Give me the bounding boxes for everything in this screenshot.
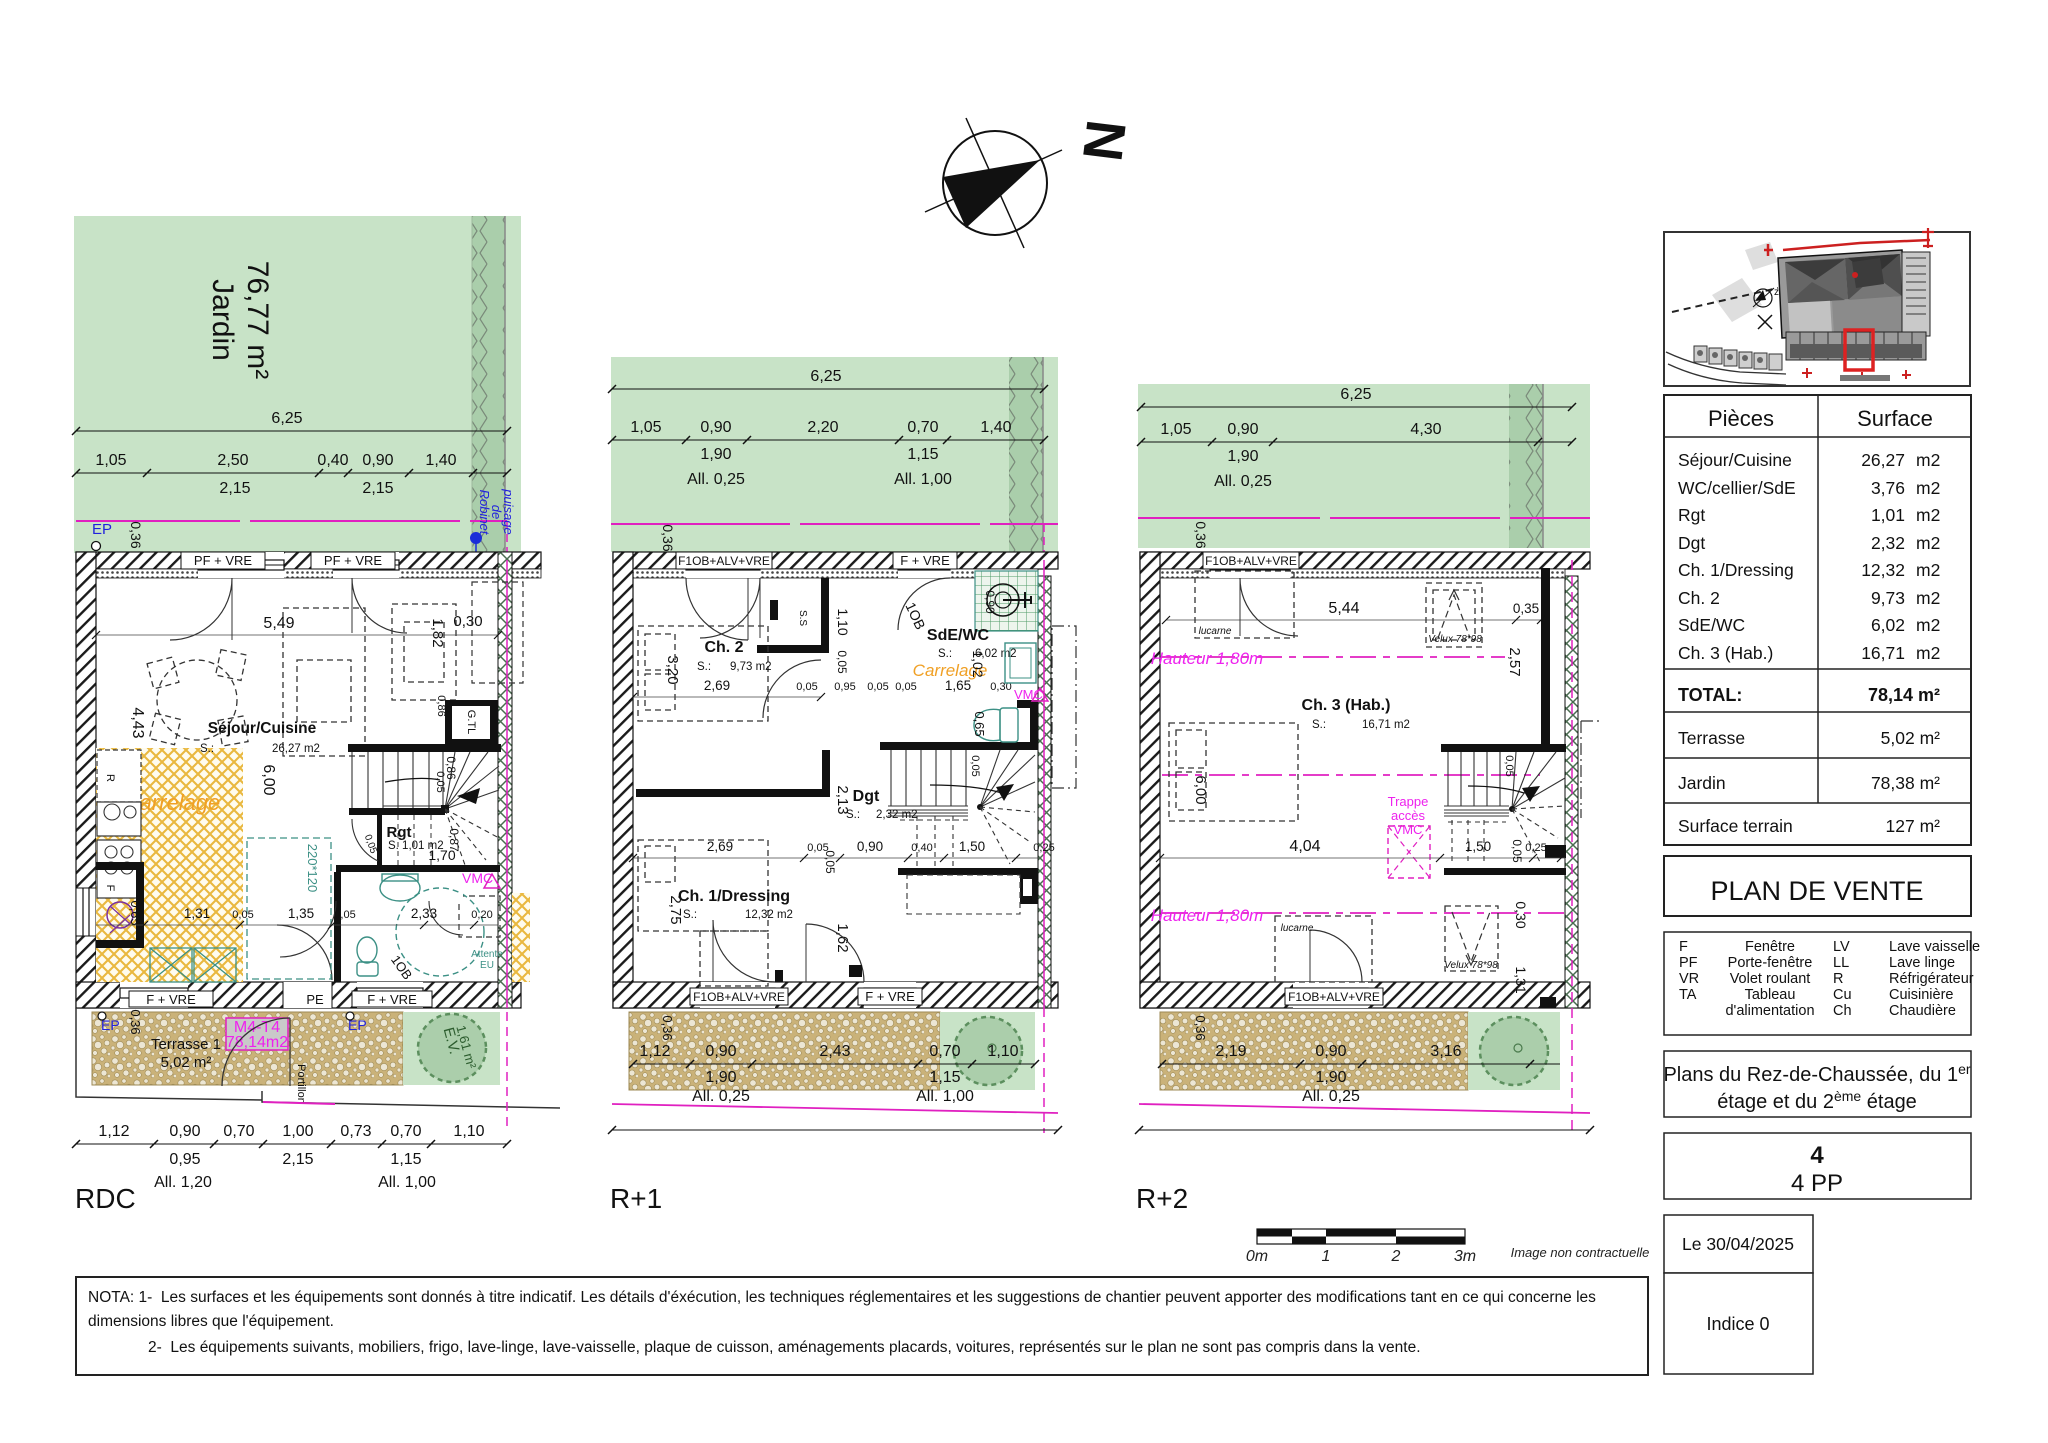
svg-text:m2: m2 xyxy=(1916,588,1940,608)
svg-text:S.:: S.: xyxy=(683,909,697,921)
svg-text:Rgt: Rgt xyxy=(1678,505,1705,525)
svg-text:0,90: 0,90 xyxy=(362,452,393,469)
svg-text:1,00: 1,00 xyxy=(282,1123,313,1140)
svg-text:1,05: 1,05 xyxy=(630,419,661,436)
svg-text:1,01: 1,01 xyxy=(1871,505,1905,525)
svg-text:S.S: S.S xyxy=(797,610,808,626)
svg-text:Volet roulant: Volet roulant xyxy=(1730,971,1811,987)
svg-text:0,35: 0,35 xyxy=(1513,601,1539,616)
svg-text:Tableau: Tableau xyxy=(1745,987,1796,1003)
svg-text:1,50: 1,50 xyxy=(959,839,985,854)
svg-text:Dgt: Dgt xyxy=(853,788,880,805)
svg-text:0,05: 0,05 xyxy=(334,909,355,921)
svg-text:16,71 m2: 16,71 m2 xyxy=(1362,719,1410,731)
svg-text:F + VRE: F + VRE xyxy=(367,992,417,1007)
svg-text:Ch: Ch xyxy=(1833,1003,1852,1019)
svg-text:VMC: VMC xyxy=(462,870,493,886)
svg-text:F + VRE: F + VRE xyxy=(146,992,196,1007)
svg-text:3m: 3m xyxy=(1454,1248,1476,1265)
svg-text:LL: LL xyxy=(1833,955,1849,971)
svg-text:2,13: 2,13 xyxy=(834,785,851,814)
svg-text:2: 2 xyxy=(1391,1248,1401,1265)
svg-text:0,36: 0,36 xyxy=(128,1009,143,1034)
svg-text:0,65: 0,65 xyxy=(128,900,143,925)
svg-text:Dgt: Dgt xyxy=(1678,533,1705,553)
svg-text:6,25: 6,25 xyxy=(1340,386,1371,403)
svg-text:4 PP: 4 PP xyxy=(1791,1170,1843,1197)
svg-text:2,57: 2,57 xyxy=(1506,647,1523,676)
svg-text:5,02 m²: 5,02 m² xyxy=(1881,728,1940,748)
svg-text:6,25: 6,25 xyxy=(271,410,302,427)
svg-text:0,36: 0,36 xyxy=(660,524,676,551)
svg-text:Ch. 2: Ch. 2 xyxy=(1678,588,1720,608)
svg-text:PF: PF xyxy=(1679,955,1698,971)
svg-text:0,90: 0,90 xyxy=(857,839,883,854)
svg-text:0,36: 0,36 xyxy=(1193,1015,1208,1040)
svg-text:Chaudière: Chaudière xyxy=(1889,1003,1956,1019)
svg-text:puisage: puisage xyxy=(501,488,516,535)
svg-text:6,25: 6,25 xyxy=(810,368,841,385)
svg-text:S.:: S.: xyxy=(1312,719,1326,731)
svg-text:1,90: 1,90 xyxy=(700,446,731,463)
svg-text:1,05: 1,05 xyxy=(95,452,126,469)
svg-text:1,82: 1,82 xyxy=(429,618,446,647)
svg-text:5,49: 5,49 xyxy=(263,615,294,632)
svg-text:VMC: VMC xyxy=(1394,822,1423,837)
svg-text:1,10: 1,10 xyxy=(987,1043,1018,1060)
svg-text:0,30: 0,30 xyxy=(453,613,482,630)
svg-text:F: F xyxy=(1679,939,1688,955)
svg-text:12,32 m2: 12,32 m2 xyxy=(745,909,793,921)
svg-text:Cuisinière: Cuisinière xyxy=(1889,987,1953,1003)
svg-text:1,90: 1,90 xyxy=(1315,1069,1346,1086)
svg-text:R: R xyxy=(1833,971,1843,987)
svg-text:S.:: S.: xyxy=(200,743,214,755)
svg-text:Fenêtre: Fenêtre xyxy=(1745,939,1795,955)
svg-text:Indice 0: Indice 0 xyxy=(1706,1314,1769,1334)
svg-text:Réfrigérateur: Réfrigérateur xyxy=(1889,971,1974,987)
svg-text:0,05: 0,05 xyxy=(969,755,981,776)
svg-text:0m: 0m xyxy=(1246,1248,1268,1265)
svg-text:m2: m2 xyxy=(1916,643,1940,663)
svg-text:78,14 m²: 78,14 m² xyxy=(1868,685,1940,705)
svg-text:0,40: 0,40 xyxy=(317,452,348,469)
svg-text:9,73: 9,73 xyxy=(1871,588,1905,608)
svg-text:PF + VRE: PF + VRE xyxy=(194,553,252,568)
svg-text:All. 1,00: All. 1,00 xyxy=(916,1088,974,1105)
svg-text:Lave linge: Lave linge xyxy=(1889,955,1955,971)
svg-text:PLAN DE VENTE: PLAN DE VENTE xyxy=(1710,876,1923,906)
svg-text:78,14m2: 78,14m2 xyxy=(226,1034,288,1051)
svg-text:0,30: 0,30 xyxy=(1513,901,1529,928)
svg-text:PF + VRE: PF + VRE xyxy=(324,553,382,568)
svg-text:S.:: S.: xyxy=(697,661,711,673)
svg-text:accès: accès xyxy=(1391,808,1425,823)
svg-text:Le 30/04/2025: Le 30/04/2025 xyxy=(1682,1234,1794,1254)
svg-text:0,70: 0,70 xyxy=(223,1123,254,1140)
svg-text:Ch. 1/Dressing: Ch. 1/Dressing xyxy=(678,888,790,905)
svg-text:0,36: 0,36 xyxy=(660,1015,675,1040)
svg-text:Rgt: Rgt xyxy=(387,824,412,841)
svg-text:F + VRE: F + VRE xyxy=(865,989,915,1004)
svg-text:0,95: 0,95 xyxy=(834,681,855,693)
svg-text:12,32: 12,32 xyxy=(1861,560,1905,580)
svg-text:0,25: 0,25 xyxy=(1033,842,1054,854)
svg-text:26,27: 26,27 xyxy=(1861,450,1905,470)
svg-text:Attente: Attente xyxy=(471,949,503,960)
svg-text:All. 0,25: All. 0,25 xyxy=(1302,1088,1360,1105)
svg-text:Pièces: Pièces xyxy=(1708,406,1774,431)
svg-text:1,50: 1,50 xyxy=(1465,839,1491,854)
svg-text:1,12: 1,12 xyxy=(98,1123,129,1140)
svg-text:VR: VR xyxy=(1679,971,1699,987)
svg-text:0,65: 0,65 xyxy=(972,711,987,736)
svg-text:76,77 m²: 76,77 m² xyxy=(241,261,274,379)
svg-text:m2: m2 xyxy=(1916,450,1940,470)
svg-text:5,44: 5,44 xyxy=(1328,600,1359,617)
svg-text:F1OB+ALV+VRE: F1OB+ALV+VRE xyxy=(678,554,770,568)
svg-text:All. 0,25: All. 0,25 xyxy=(1214,473,1272,490)
svg-text:0,20: 0,20 xyxy=(471,909,492,921)
svg-text:16,71: 16,71 xyxy=(1861,643,1905,663)
svg-text:All. 1,00: All. 1,00 xyxy=(378,1174,436,1191)
svg-text:6,02: 6,02 xyxy=(1871,615,1905,635)
svg-text:Surface: Surface xyxy=(1857,406,1933,431)
svg-text:2,32: 2,32 xyxy=(1871,533,1905,553)
svg-text:0,90: 0,90 xyxy=(700,419,731,436)
svg-text:5,02 m²: 5,02 m² xyxy=(161,1054,212,1071)
svg-text:2,32 m2: 2,32 m2 xyxy=(876,809,918,821)
svg-text:SdE/WC: SdE/WC xyxy=(1678,615,1745,635)
svg-text:Terrasse 1: Terrasse 1 xyxy=(151,1036,221,1053)
svg-text:1,65: 1,65 xyxy=(945,678,971,693)
svg-text:127 m²: 127 m² xyxy=(1886,816,1941,836)
svg-text:m2: m2 xyxy=(1916,478,1940,498)
svg-text:2,15: 2,15 xyxy=(362,480,393,497)
svg-text:4,30: 4,30 xyxy=(1410,421,1441,438)
svg-text:All. 0,25: All. 0,25 xyxy=(687,471,745,488)
svg-text:0,05: 0,05 xyxy=(807,842,828,854)
svg-text:1,31: 1,31 xyxy=(184,906,210,921)
svg-text:Jardin: Jardin xyxy=(1678,773,1726,793)
svg-text:Portillon: Portillon xyxy=(295,1064,307,1104)
svg-text:1,12: 1,12 xyxy=(639,1043,670,1060)
svg-text:1,10: 1,10 xyxy=(835,608,851,635)
svg-text:0,05: 0,05 xyxy=(835,650,849,674)
svg-text:0,70: 0,70 xyxy=(390,1123,421,1140)
svg-text:Trappe: Trappe xyxy=(1388,794,1429,809)
svg-text:Ch. 3 (Hab.): Ch. 3 (Hab.) xyxy=(1302,697,1391,714)
svg-text:EP: EP xyxy=(92,521,112,538)
svg-text:0,90: 0,90 xyxy=(705,1043,736,1060)
svg-text:1,40: 1,40 xyxy=(980,419,1011,436)
svg-text:TOTAL:: TOTAL: xyxy=(1678,685,1742,705)
svg-text:4,04: 4,04 xyxy=(1289,838,1320,855)
svg-text:2,69: 2,69 xyxy=(704,678,730,693)
svg-text:Terrasse: Terrasse xyxy=(1678,728,1745,748)
svg-text:9,73 m2: 9,73 m2 xyxy=(730,661,772,673)
svg-text:Surface terrain: Surface terrain xyxy=(1678,816,1793,836)
svg-text:All. 1,20: All. 1,20 xyxy=(154,1174,212,1191)
svg-text:1,90: 1,90 xyxy=(1227,448,1258,465)
svg-text:0,86: 0,86 xyxy=(444,756,458,780)
svg-text:0,95: 0,95 xyxy=(169,1151,200,1168)
svg-text:0,05: 0,05 xyxy=(232,909,253,921)
svg-text:Porte-fenêtre: Porte-fenêtre xyxy=(1728,955,1813,971)
svg-text:0,05: 0,05 xyxy=(895,681,916,693)
svg-text:2,20: 2,20 xyxy=(807,419,838,436)
svg-text:1: 1 xyxy=(1322,1248,1331,1265)
svg-text:6,00: 6,00 xyxy=(1192,775,1209,804)
svg-text:Jardin: Jardin xyxy=(206,279,239,361)
svg-text:2,33: 2,33 xyxy=(411,906,437,921)
svg-text:0,36: 0,36 xyxy=(128,521,144,548)
svg-text:Plans du Rez-de-Chaussée, du 1: Plans du Rez-de-Chaussée, du 1er xyxy=(1663,1061,1970,1086)
svg-text:G.TL: G.TL xyxy=(465,710,477,734)
svg-text:Image non contractuelle: Image non contractuelle xyxy=(1511,1245,1650,1260)
svg-text:m2: m2 xyxy=(1916,505,1940,525)
svg-text:F + VRE: F + VRE xyxy=(900,553,950,568)
svg-text:3,76: 3,76 xyxy=(1871,478,1905,498)
svg-text:m2: m2 xyxy=(1916,533,1940,553)
svg-text:R+1: R+1 xyxy=(610,1183,662,1214)
svg-text:1,15: 1,15 xyxy=(390,1151,421,1168)
svg-text:0,70: 0,70 xyxy=(907,419,938,436)
svg-text:1,40: 1,40 xyxy=(425,452,456,469)
svg-text:Ch. 1/Dressing: Ch. 1/Dressing xyxy=(1678,560,1794,580)
svg-text:F1OB+ALV+VRE: F1OB+ALV+VRE xyxy=(693,990,785,1004)
svg-text:S.:: S.: xyxy=(938,648,952,660)
svg-text:2,15: 2,15 xyxy=(282,1151,313,1168)
svg-text:All. 1,00: All. 1,00 xyxy=(894,471,952,488)
svg-text:0,05: 0,05 xyxy=(1510,839,1524,863)
svg-text:N: N xyxy=(1071,117,1138,165)
svg-text:220*120: 220*120 xyxy=(305,844,320,892)
svg-text:3,20: 3,20 xyxy=(664,655,681,684)
svg-text:0,40: 0,40 xyxy=(911,842,932,854)
svg-text:Séjour/Cuisine: Séjour/Cuisine xyxy=(208,720,317,737)
svg-text:0,90: 0,90 xyxy=(983,590,997,614)
svg-text:0,70: 0,70 xyxy=(929,1043,960,1060)
svg-text:F1OB+ALV+VRE: F1OB+ALV+VRE xyxy=(1288,990,1380,1004)
svg-text:TA: TA xyxy=(1679,987,1697,1003)
svg-text:1,31: 1,31 xyxy=(1513,966,1529,993)
svg-text:LV: LV xyxy=(1833,939,1850,955)
svg-text:0,90: 0,90 xyxy=(169,1123,200,1140)
svg-text:F1OB+ALV+VRE: F1OB+ALV+VRE xyxy=(1205,554,1297,568)
svg-text:Velux 78*98: Velux 78*98 xyxy=(1428,634,1482,645)
svg-text:0,73: 0,73 xyxy=(340,1123,371,1140)
svg-text:1,10: 1,10 xyxy=(453,1123,484,1140)
svg-text:F: F xyxy=(104,885,116,892)
svg-text:Velux 78*98: Velux 78*98 xyxy=(1444,960,1498,971)
svg-text:dimensions libres que l'équipe: dimensions libres que l'équipement. xyxy=(88,1313,334,1330)
svg-text:0,05: 0,05 xyxy=(796,681,817,693)
svg-text:m2: m2 xyxy=(1916,615,1940,635)
svg-text:2,50: 2,50 xyxy=(217,452,248,469)
svg-text:2- Les équipements suivants,: 2- Les équipements suivants, mobiliers, … xyxy=(148,1339,1421,1356)
svg-text:Hauteur 1,80m: Hauteur 1,80m xyxy=(1151,649,1263,668)
svg-text:WC/cellier/SdE: WC/cellier/SdE xyxy=(1678,478,1796,498)
svg-text:1,15: 1,15 xyxy=(907,446,938,463)
svg-text:lucarne: lucarne xyxy=(1281,923,1314,934)
svg-text:Hauteur 1,80m: Hauteur 1,80m xyxy=(1151,906,1263,925)
svg-text:Ch. 3 (Hab.): Ch. 3 (Hab.) xyxy=(1678,643,1773,663)
svg-text:étage et du 2ème étage: étage et du 2ème étage xyxy=(1717,1088,1917,1113)
svg-text:1,90: 1,90 xyxy=(705,1069,736,1086)
svg-text:Lave vaisselle: Lave vaisselle xyxy=(1889,939,1980,955)
svg-text:2,43: 2,43 xyxy=(819,1043,850,1060)
svg-text:RDC: RDC xyxy=(75,1183,136,1214)
svg-text:Ch. 2: Ch. 2 xyxy=(704,639,743,656)
svg-text:4: 4 xyxy=(1810,1142,1824,1169)
svg-text:1,15: 1,15 xyxy=(929,1069,960,1086)
svg-text:NOTA: 1- Les surfaces et les: NOTA: 1- Les surfaces et les équipements… xyxy=(88,1289,1596,1306)
svg-text:Cu: Cu xyxy=(1833,987,1852,1003)
svg-text:2,19: 2,19 xyxy=(1215,1043,1246,1060)
svg-text:2,69: 2,69 xyxy=(707,839,733,854)
svg-text:PE: PE xyxy=(306,992,324,1007)
svg-text:All. 0,25: All. 0,25 xyxy=(692,1088,750,1105)
svg-text:Séjour/Cuisine: Séjour/Cuisine xyxy=(1678,450,1792,470)
svg-text:1,02: 1,02 xyxy=(970,650,986,677)
svg-text:4,43: 4,43 xyxy=(129,707,146,738)
svg-text:m2: m2 xyxy=(1916,560,1940,580)
svg-text:d'alimentation: d'alimentation xyxy=(1725,1003,1814,1019)
svg-text:0,90: 0,90 xyxy=(1227,421,1258,438)
svg-text:lucarne: lucarne xyxy=(1199,626,1232,637)
svg-text:0,86: 0,86 xyxy=(435,695,447,716)
svg-text:0,36: 0,36 xyxy=(1193,521,1209,548)
svg-text:0,05: 0,05 xyxy=(867,681,888,693)
svg-text:SdE/WC: SdE/WC xyxy=(927,627,990,644)
svg-text:0,05: 0,05 xyxy=(1503,755,1515,776)
svg-text:R: R xyxy=(104,774,116,782)
svg-text:z: z xyxy=(1774,287,1779,298)
svg-text:3,16: 3,16 xyxy=(1430,1043,1461,1060)
svg-text:0,90: 0,90 xyxy=(1315,1043,1346,1060)
svg-text:1,05: 1,05 xyxy=(1160,421,1191,438)
svg-text:1,62: 1,62 xyxy=(834,923,851,952)
svg-text:26,27 m2: 26,27 m2 xyxy=(272,743,320,755)
svg-text:EU: EU xyxy=(480,960,494,971)
svg-text:0,25: 0,25 xyxy=(1525,842,1546,854)
svg-text:R+2: R+2 xyxy=(1136,1183,1188,1214)
svg-text:1,70: 1,70 xyxy=(428,847,455,863)
svg-text:1,35: 1,35 xyxy=(288,906,314,921)
svg-text:2,15: 2,15 xyxy=(219,480,250,497)
svg-text:6,00: 6,00 xyxy=(260,764,277,795)
svg-text:78,38 m²: 78,38 m² xyxy=(1871,773,1940,793)
